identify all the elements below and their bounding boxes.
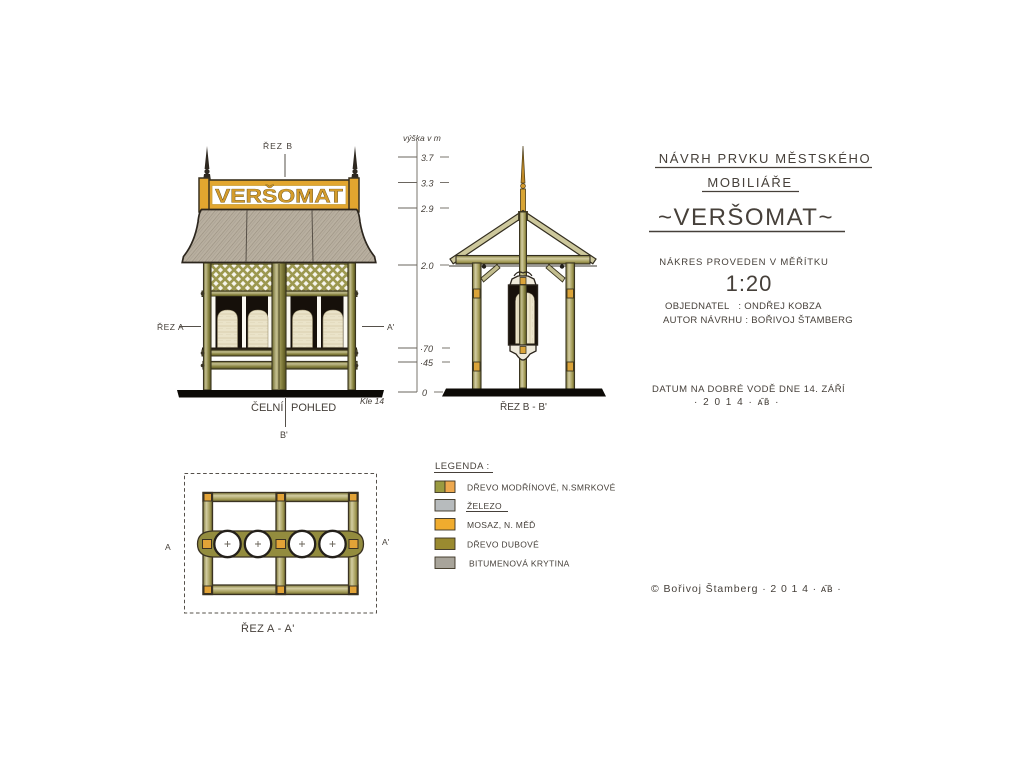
svg-text:DATUM NA DOBRÉ VODĚ DNE 14. ZÁ: DATUM NA DOBRÉ VODĚ DNE 14. ZÁŘÍ — [652, 384, 845, 395]
svg-text:A: A — [165, 542, 171, 552]
svg-text:výška v m: výška v m — [403, 133, 441, 143]
svg-text:ŘEZ A - A': ŘEZ A - A' — [241, 622, 295, 635]
svg-text:ŘEZ B: ŘEZ B — [263, 141, 293, 151]
svg-text:NÁVRH PRVKU MĚSTSKÉHO: NÁVRH PRVKU MĚSTSKÉHO — [659, 151, 872, 166]
svg-text:2.9: 2.9 — [420, 204, 434, 214]
svg-text:ŘEZ B - B': ŘEZ B - B' — [500, 400, 547, 413]
svg-text:BITUMENOVÁ KRYTINA: BITUMENOVÁ KRYTINA — [469, 559, 570, 569]
svg-text:A': A' — [387, 322, 395, 332]
svg-text:DŘEVO DUBOVÉ: DŘEVO DUBOVÉ — [467, 540, 539, 550]
svg-text:· 2 0 1 4 · ᴀ̄ʙ̄ ·: · 2 0 1 4 · ᴀ̄ʙ̄ · — [694, 397, 780, 408]
svg-text:LEGENDA :: LEGENDA : — [435, 461, 490, 472]
svg-text:AUTOR NÁVRHU : BOŘIVOJ ŠTAMBER: AUTOR NÁVRHU : BOŘIVOJ ŠTAMBERG — [663, 315, 853, 326]
svg-text:ŽELEZO: ŽELEZO — [467, 501, 502, 511]
svg-text:POHLED: POHLED — [291, 402, 336, 414]
svg-text:NÁKRES PROVEDEN V MĚŘÍTKU: NÁKRES PROVEDEN V MĚŘÍTKU — [659, 257, 828, 268]
svg-text:0: 0 — [422, 388, 427, 398]
svg-text:·45: ·45 — [420, 358, 434, 368]
svg-text:OBJEDNATEL : ONDŘEJ KOBZA: OBJEDNATEL : ONDŘEJ KOBZA — [665, 301, 822, 312]
svg-text:DŘEVO MODŘÍNOVÉ, N.SMRKOVÉ: DŘEVO MODŘÍNOVÉ, N.SMRKOVÉ — [467, 483, 616, 493]
svg-text:Kle 14: Kle 14 — [360, 396, 384, 406]
svg-text:·70: ·70 — [420, 344, 433, 354]
svg-text:MOBILIÁŘE: MOBILIÁŘE — [707, 175, 792, 190]
svg-text:ČELNÍ: ČELNÍ — [251, 401, 284, 414]
svg-text:~VERŠOMAT~: ~VERŠOMAT~ — [658, 203, 834, 231]
svg-text:VERŠOMAT: VERŠOMAT — [215, 186, 343, 208]
svg-text:3.3: 3.3 — [421, 179, 434, 189]
svg-text:© Bořivoj Štamberg · 2 0 1 4 ·: © Bořivoj Štamberg · 2 0 1 4 · ᴀ̄ʙ̄ · — [651, 582, 842, 595]
svg-text:3.7: 3.7 — [421, 153, 435, 163]
svg-text:2.0: 2.0 — [420, 261, 434, 271]
svg-text:A': A' — [382, 537, 390, 547]
svg-text:MOSAZ, N. MĚĎ: MOSAZ, N. MĚĎ — [467, 520, 536, 530]
svg-text:B': B' — [280, 430, 288, 440]
svg-text:1:20: 1:20 — [726, 271, 773, 296]
